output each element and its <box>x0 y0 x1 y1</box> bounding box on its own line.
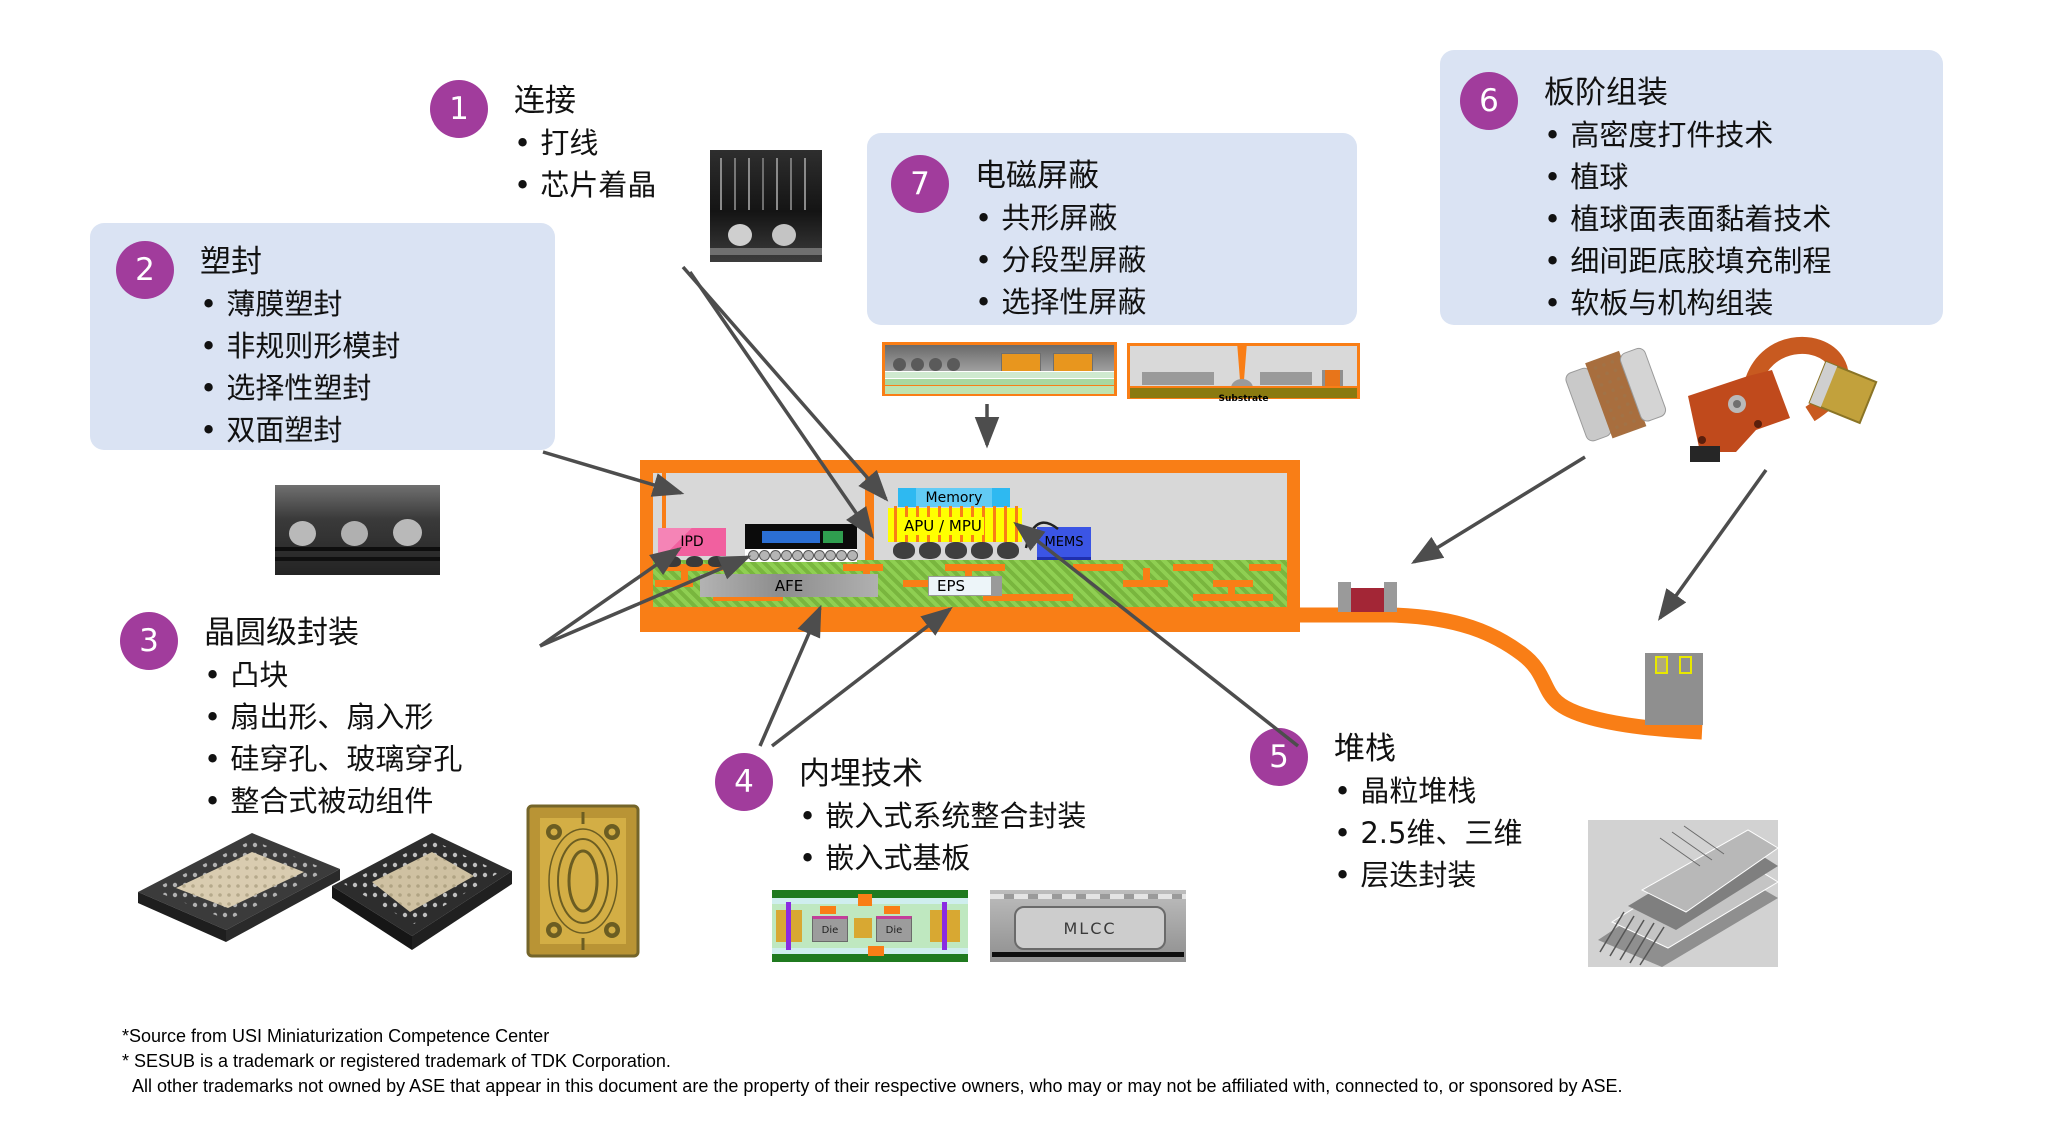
via <box>1228 584 1235 597</box>
flex-cable <box>1298 582 1703 732</box>
ipd-substrate-photo <box>528 806 638 956</box>
pillar <box>1004 506 1007 542</box>
arrow-board-a <box>1414 457 1585 562</box>
wire <box>720 158 722 210</box>
callout-3-bullet: 整合式被动组件 <box>204 780 462 822</box>
gold-pad <box>854 918 872 938</box>
substrate-label: Substrate <box>1219 394 1269 404</box>
mems-base <box>1037 557 1091 560</box>
ipd-label: IPD <box>680 534 703 550</box>
pillar <box>1015 506 1018 542</box>
bga-package-photo-1 <box>138 833 340 942</box>
wire <box>748 158 750 210</box>
trace <box>820 906 836 914</box>
callout-3-title: 晶圆级封装 <box>204 612 462 654</box>
eps-cap <box>991 577 1001 595</box>
callout-5-title: 堆栈 <box>1334 728 1522 770</box>
callout-1-bullet: 打线 <box>514 122 656 164</box>
mold-area <box>885 345 1114 371</box>
flex-module-photo <box>1688 345 1876 462</box>
mems-label: MEMS <box>1045 535 1084 550</box>
callout-7-title: 电磁屏蔽 <box>975 155 1146 197</box>
connector-pad <box>1656 657 1667 673</box>
callout-5-number-badge: 5 <box>1250 728 1308 786</box>
bga-package-photo-2 <box>332 833 512 950</box>
pad-row <box>710 248 822 255</box>
laminate-layer <box>885 371 1114 378</box>
callout-6-board-level-assembly: 6 板阶组装 高密度打件技术 植球 植球面表面黏着技术 细间距底胶填充制程 软板… <box>1440 50 1943 325</box>
trace <box>868 946 884 956</box>
callout-1-bullet: 芯片着晶 <box>514 164 656 206</box>
chip <box>1142 372 1214 385</box>
solder-ball <box>341 521 368 546</box>
memory-chip: Memory <box>898 488 1010 507</box>
micro-bump <box>847 550 858 561</box>
callout-1-number-badge: 1 <box>430 80 488 138</box>
trace <box>858 894 872 906</box>
conformal-shield-diagram <box>882 342 1117 396</box>
component-terminal <box>1384 582 1397 612</box>
wire <box>804 158 806 210</box>
callout-7-bullet: 选择性屏蔽 <box>975 281 1146 323</box>
pillar <box>993 506 996 542</box>
arrow-board-b <box>1660 470 1766 618</box>
ceramic-capacitor-photo <box>1563 343 1669 447</box>
mlcc-body: MLCC <box>1014 906 1166 950</box>
bump <box>911 358 924 371</box>
bump <box>947 358 960 371</box>
callout-6-bullet: 细间距底胶填充制程 <box>1544 240 1831 282</box>
red-component <box>1351 588 1384 612</box>
callout-2-title: 塑封 <box>200 241 400 283</box>
eps-embedded-chip: EPS <box>928 576 1002 596</box>
callout-4-number-badge: 4 <box>715 753 773 811</box>
afe-embedded-chip: AFE <box>700 574 878 597</box>
callout-2-bullet: 非规则形模封 <box>200 325 400 367</box>
solder-bump <box>997 542 1019 559</box>
stacked-die-photo <box>1588 820 1778 967</box>
laminate-layer <box>885 378 1114 385</box>
sip-module-cross-section: IPD Memory APU / MPU <box>640 460 1300 632</box>
shield-bottom <box>640 607 1300 632</box>
eps-label: EPS <box>937 577 965 595</box>
wire-bond-photo <box>710 150 822 262</box>
callout-3-wafer-level-packaging: 3 晶圆级封装 凸块 扇出形、扇入形 硅穿孔、玻璃穿孔 整合式被动组件 <box>120 612 462 822</box>
solder-ball <box>772 224 796 246</box>
callout-1-title: 连接 <box>514 80 656 122</box>
slide-canvas: { "colors": { "accent_purple": "#A13C9C"… <box>0 0 2048 1141</box>
wire <box>776 158 778 210</box>
solder-ball <box>728 224 752 246</box>
micro-bump <box>781 550 792 561</box>
trace <box>1249 564 1281 571</box>
pillar <box>894 506 897 542</box>
embedded-substrate-diagram: Die Die <box>772 890 968 962</box>
micro-bump <box>748 550 759 561</box>
pad-dashes <box>990 894 1186 899</box>
die-region-blue <box>762 531 820 543</box>
stripe <box>275 557 440 561</box>
callout-1-connection: 1 连接 打线 芯片着晶 <box>430 80 656 206</box>
connector-pad <box>1680 657 1691 673</box>
compartment-shield-diagram: Substrate <box>1127 343 1360 399</box>
solder-bump <box>893 542 915 559</box>
substrate-band: Substrate <box>1130 386 1357 398</box>
apu-mpu-chip: APU / MPU <box>888 508 1022 542</box>
callout-4-bullet: 嵌入式基板 <box>799 837 1086 879</box>
callout-6-bullet: 植球 <box>1544 156 1831 198</box>
chip <box>1260 372 1312 385</box>
solder-bump <box>919 542 941 559</box>
callout-6-bullet: 软板与机构组装 <box>1544 282 1831 324</box>
trace <box>884 906 900 914</box>
callout-4-title: 内埋技术 <box>799 753 1086 795</box>
mlcc-xray-photo: MLCC <box>990 890 1186 962</box>
micro-bump <box>759 550 770 561</box>
bump <box>893 358 906 371</box>
callout-2-molding: 2 塑封 薄膜塑封 非规则形模封 选择性塑封 双面塑封 <box>90 223 555 450</box>
callout-2-bullet: 选择性塑封 <box>200 367 400 409</box>
callout-2-bullet: 薄膜塑封 <box>200 283 400 325</box>
wire <box>762 158 764 210</box>
apu-mpu-label: APU / MPU <box>902 517 984 535</box>
via <box>681 568 688 583</box>
die-label: Die <box>822 925 839 936</box>
callout-7-bullet: 共形屏蔽 <box>975 197 1146 239</box>
ipd-chip: IPD <box>658 528 726 556</box>
callout-2-number-badge: 2 <box>116 241 174 299</box>
memory-label: Memory <box>926 490 983 506</box>
micro-bump <box>770 550 781 561</box>
callout-5-bullet: 2.5维、三维 <box>1334 812 1522 854</box>
solder-bump <box>945 542 967 559</box>
compartment-divider <box>865 473 874 573</box>
callout-4-embedded-technology: 4 内埋技术 嵌入式系统整合封装 嵌入式基板 <box>715 753 1086 879</box>
callout-5-bullet: 层迭封装 <box>1334 854 1522 896</box>
stripe <box>992 952 1184 957</box>
callout-6-title: 板阶组装 <box>1544 72 1831 114</box>
laminate-layer <box>885 385 1114 394</box>
callout-6-bullet: 植球面表面黏着技术 <box>1544 198 1831 240</box>
solder-bump <box>971 542 993 559</box>
via <box>786 902 791 950</box>
flip-chip-die <box>745 524 857 549</box>
callout-7-bullet: 分段型屏蔽 <box>975 239 1146 281</box>
callout-7-number-badge: 7 <box>891 155 949 213</box>
callout-3-bullet: 硅穿孔、玻璃穿孔 <box>204 738 462 780</box>
trace <box>945 564 1005 571</box>
bump <box>664 556 681 567</box>
component-terminal <box>1338 582 1351 612</box>
die-region-green <box>823 531 843 543</box>
shield-top <box>640 460 1300 473</box>
footer-line-1: *Source from USI Miniaturization Compete… <box>122 1024 1622 1049</box>
callout-4-bullet: 嵌入式系统整合封装 <box>799 795 1086 837</box>
solder-ball <box>289 521 316 546</box>
micro-bump <box>825 550 836 561</box>
wire <box>734 158 736 210</box>
mems-chip: MEMS <box>1037 527 1091 557</box>
micro-bump <box>792 550 803 561</box>
bump <box>929 358 942 371</box>
micro-bump <box>803 550 814 561</box>
via <box>942 902 947 950</box>
bump-strip <box>745 549 857 562</box>
callout-3-bullet: 凸块 <box>204 654 462 696</box>
via <box>1143 568 1150 583</box>
callout-2-bullet: 双面塑封 <box>200 409 400 451</box>
trace <box>1073 564 1123 571</box>
bump <box>686 556 703 567</box>
callout-3-number-badge: 3 <box>120 612 178 670</box>
embedded-die: Die <box>876 916 912 942</box>
callout-6-bullet: 高密度打件技术 <box>1544 114 1831 156</box>
solder-ball <box>393 519 422 546</box>
connector-block <box>1645 653 1703 725</box>
component <box>1001 353 1041 372</box>
callout-6-number-badge: 6 <box>1460 72 1518 130</box>
callout-3-bullet: 扇出形、扇入形 <box>204 696 462 738</box>
embedded-die: Die <box>812 916 848 942</box>
bump <box>708 556 725 567</box>
mlcc-label: MLCC <box>1063 919 1116 938</box>
trace <box>1173 564 1213 571</box>
solder-ball-photo <box>275 485 440 575</box>
micro-bump <box>814 550 825 561</box>
footer-line-2: * SESUB is a trademark or registered tra… <box>122 1049 1622 1074</box>
component <box>1053 353 1093 372</box>
afe-label: AFE <box>775 577 803 595</box>
stripe <box>275 547 440 551</box>
callout-5-bullet: 晶粒堆栈 <box>1334 770 1522 812</box>
micro-bump <box>836 550 847 561</box>
footer-line-3: All other trademarks not owned by ASE th… <box>122 1074 1622 1099</box>
footer-disclaimer: *Source from USI Miniaturization Compete… <box>122 1024 1622 1099</box>
wire <box>790 158 792 210</box>
callout-7-emi-shielding: 7 电磁屏蔽 共形屏蔽 分段型屏蔽 选择性屏蔽 <box>867 133 1357 325</box>
callout-5-stacking: 5 堆栈 晶粒堆栈 2.5维、三维 层迭封装 <box>1250 728 1522 896</box>
component <box>1322 370 1343 386</box>
die-label: Die <box>886 925 903 936</box>
